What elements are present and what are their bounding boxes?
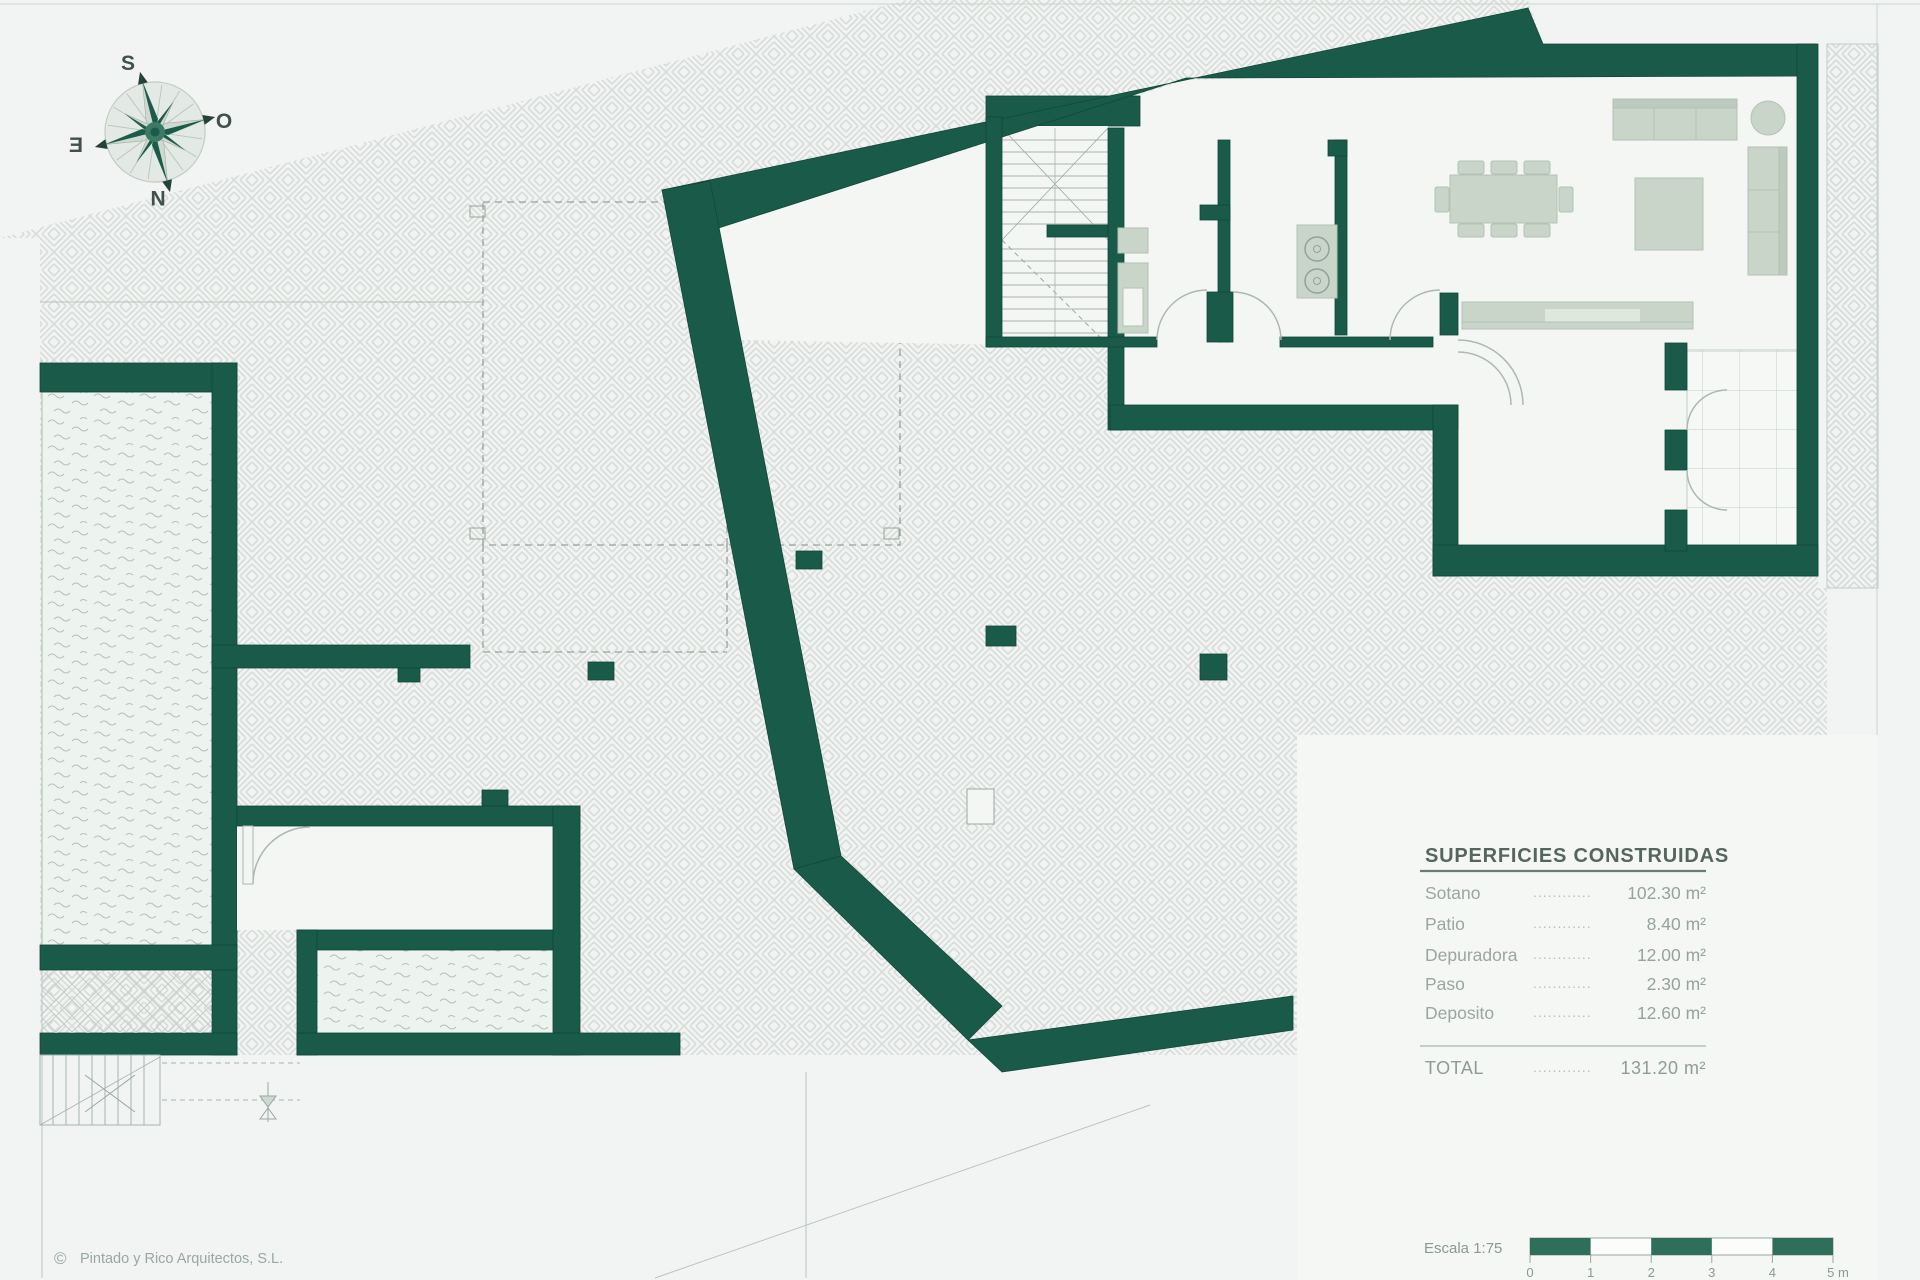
compass-label-east: E [69,134,83,157]
row-value: 2.30 m² [1647,974,1706,994]
copyright-icon: © [54,1249,67,1268]
copyright-text: Pintado y Rico Arquitectos, S.L. [80,1251,283,1267]
kitchen-counter [1118,228,1148,253]
deposito-room [42,972,212,1033]
total-leader: ............ [1533,1059,1592,1075]
scale-tick: 1 [1587,1265,1594,1280]
compass-label-north: N [150,186,165,209]
wall-opening [967,789,994,824]
scale-label: Escala 1:75 [1424,1240,1502,1257]
row-value: 102.30 m² [1627,883,1706,903]
row-value: 12.00 m² [1637,945,1706,965]
pier [398,668,420,682]
patio-water [317,950,553,1033]
areas-table-title: SUPERFICIES CONSTRUIDAS [1425,845,1729,867]
paso-door-leaf [243,826,253,884]
scale-tick: 5 m [1827,1265,1849,1280]
pier [1200,654,1227,680]
row-label: Paso [1425,974,1465,994]
drain-symbol [260,1082,276,1122]
kitchen-sink-counter [1118,263,1148,333]
floor-plan-sheet: SUPERFICIES CONSTRUIDAS Sotano .........… [0,0,1920,1280]
scale-tick: 4 [1769,1265,1776,1280]
row-value: 12.60 m² [1637,1003,1706,1023]
pier [588,662,614,680]
round-side-table [1751,101,1785,135]
row-value: 8.40 m² [1647,914,1706,934]
compass-label-west: O [216,110,232,133]
scale-tick: 3 [1708,1265,1715,1280]
east-wall [1797,44,1818,576]
row-leader: ............ [1533,884,1592,900]
pier [986,626,1016,646]
pool [40,363,237,1055]
row-label: Depuradora [1425,945,1518,965]
row-leader: ............ [1533,915,1592,931]
bathroom-tiled-floor [1687,350,1797,545]
scale-tick: 2 [1648,1265,1655,1280]
footer: © Pintado y Rico Arquitectos, S.L. [54,1249,283,1268]
compass-label-south: S [121,52,135,75]
scale-tick: 0 [1526,1265,1533,1280]
row-label: Sotano [1425,883,1480,903]
pier [796,551,822,569]
row-label: Patio [1425,914,1465,934]
row-leader: ............ [1533,946,1592,962]
sofa-right [1748,147,1787,275]
sideboard-bench [1462,302,1693,329]
total-value: 131.20 m² [1620,1058,1706,1078]
pool-water [42,392,212,945]
retaining-strip [1827,44,1878,588]
row-leader: ............ [1533,975,1592,991]
total-label: TOTAL [1425,1058,1484,1078]
floor-plan-canvas: SUPERFICIES CONSTRUIDAS Sotano .........… [0,0,1920,1280]
sofa-top [1613,99,1737,140]
paso-corridor [237,826,553,930]
cooktop-island [1297,225,1337,298]
coffee-table [1635,178,1703,250]
row-leader: ............ [1533,1004,1592,1020]
exterior-stairs [40,1055,300,1125]
row-label: Deposito [1425,1003,1494,1023]
